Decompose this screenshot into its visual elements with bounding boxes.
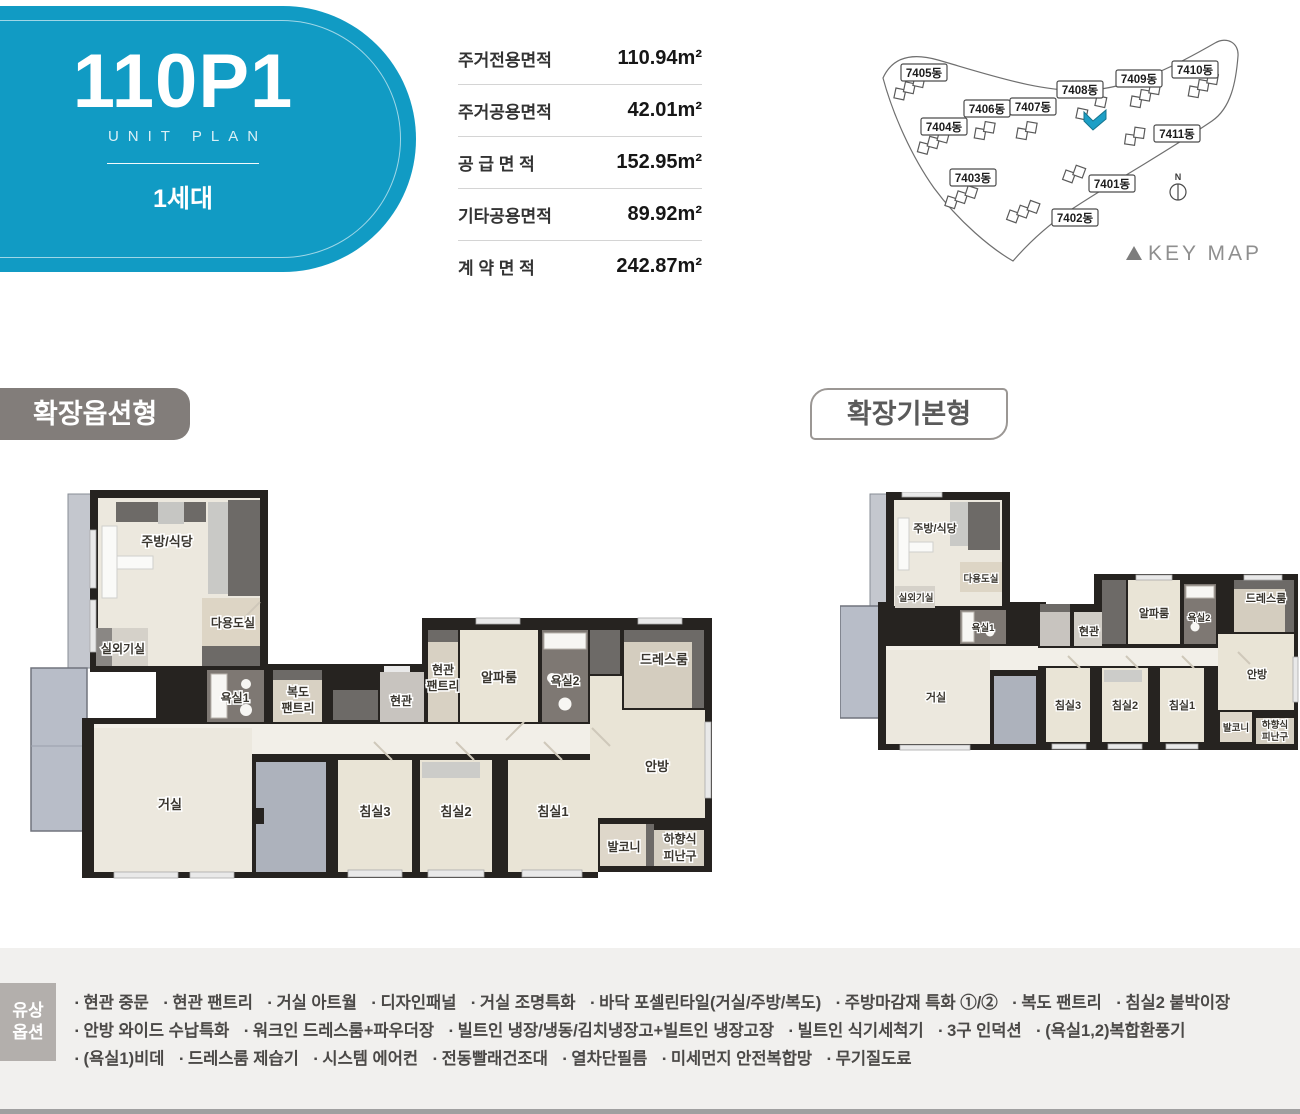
- table-row: 공 급 면 적 152.95m²: [458, 137, 702, 189]
- building-label: 7401동: [1089, 175, 1135, 192]
- option-item: ▪무기질도료: [827, 1050, 911, 1068]
- svg-text:7407동: 7407동: [1015, 101, 1052, 114]
- unit-subtitle: UNIT PLAN: [26, 128, 340, 145]
- square-bullet-icon: ▪: [471, 998, 475, 1009]
- paid-options-label-line: 옵션: [12, 1022, 43, 1044]
- building-label: 7403동: [950, 169, 996, 186]
- paid-options-label: 유상 옵션: [0, 983, 56, 1061]
- area-label: 주거공용면적: [458, 98, 552, 123]
- option-item: ▪워크인 드레스룸+파우더장: [244, 1022, 434, 1040]
- option-item: ▪전동빨래건조대: [433, 1050, 548, 1068]
- square-bullet-icon: ▪: [1037, 1026, 1041, 1037]
- building-label: 7406동: [964, 100, 1010, 117]
- area-label: 공 급 면 적: [458, 150, 535, 175]
- building-label: 7411동: [1154, 125, 1200, 142]
- paid-options-label-line: 유상: [12, 1000, 43, 1022]
- paid-options-line: ▪안방 와이드 수납특화▪워크인 드레스룸+파우더장▪빌트인 냉장/냉동/김치냉…: [75, 1017, 1290, 1045]
- room-label-entry: 현관: [390, 693, 412, 708]
- svg-text:7405동: 7405동: [906, 67, 943, 80]
- option-item: ▪(욕실1,2)복합환풍기: [1037, 1022, 1186, 1040]
- option-item: ▪빌트인 식기세척기: [789, 1022, 924, 1040]
- room-label-alpha: 알파룸: [1139, 606, 1169, 620]
- room-label-master: 안방: [645, 759, 669, 774]
- room-label-bath1: 욕실1: [221, 690, 250, 705]
- area-label: 기타공용면적: [458, 202, 552, 227]
- building-label: 7409동: [1116, 70, 1162, 87]
- paid-options-line: ▪현관 중문▪현관 팬트리▪거실 아트월▪디자인패널▪거실 조명특화▪바닥 포셀…: [75, 989, 1290, 1017]
- square-bullet-icon: ▪: [591, 998, 595, 1009]
- room-label-escape: 피난구: [663, 848, 696, 863]
- room-label-living: 거실: [158, 797, 182, 812]
- room-label-hall-pantry: 복도: [287, 685, 309, 699]
- floor-plan-basic-type: 주방/식당 다용도실 실외기실 욕실1 현관 알파룸 욕실2 드레스룸 거실 침…: [840, 492, 1300, 760]
- room-label-balcony: 발코니: [1223, 722, 1249, 734]
- room-label-entry: 현관: [1079, 624, 1099, 638]
- svg-text:7401동: 7401동: [1094, 178, 1131, 191]
- room-label-escape: 하향식: [1262, 719, 1288, 731]
- option-item: ▪주방마감재 특화 ①/②: [836, 994, 998, 1012]
- room-label-bed3: 침실3: [1055, 698, 1081, 712]
- square-bullet-icon: ▪: [449, 1026, 453, 1037]
- household-count: 1세대: [26, 179, 340, 215]
- paid-options-bar: 유상 옵션 ▪현관 중문▪현관 팬트리▪거실 아트월▪디자인패널▪거실 조명특화…: [0, 948, 1300, 1114]
- square-bullet-icon: ▪: [314, 1054, 318, 1065]
- room-label-utility: 다용도실: [211, 615, 255, 630]
- square-bullet-icon: ▪: [164, 998, 168, 1009]
- svg-text:7408동: 7408동: [1062, 84, 1099, 97]
- svg-text:7402동: 7402동: [1057, 212, 1094, 225]
- room-label-alpha: 알파룸: [481, 670, 517, 685]
- floor-plan-option-type: 주방/식당 다용도실 실외기실 욕실1 복도 팬트리 현관 현관 팬트리 알파룸…: [30, 478, 720, 890]
- area-value: 89.92m²: [628, 203, 703, 226]
- svg-text:KEY MAP: KEY MAP: [1148, 242, 1262, 265]
- square-bullet-icon: ▪: [75, 1054, 79, 1065]
- option-item: ▪현관 팬트리: [164, 994, 253, 1012]
- svg-text:7406동: 7406동: [969, 103, 1006, 116]
- option-item: ▪드레스룸 제습기: [179, 1050, 298, 1068]
- table-row: 기타공용면적 89.92m²: [458, 189, 702, 241]
- square-bullet-icon: ▪: [179, 1054, 183, 1065]
- building-label: 7410동: [1172, 61, 1218, 78]
- table-row: 계 약 면 적 242.87m²: [458, 241, 702, 292]
- plan-type-option-badge: 확장옵션형: [0, 388, 190, 440]
- room-label-bed2: 침실2: [440, 804, 471, 819]
- room-label-bed1: 침실1: [1169, 698, 1195, 712]
- room-label-bed3: 침실3: [359, 804, 390, 819]
- room-label-outdoor-unit: 실외기실: [101, 641, 145, 656]
- svg-text:N: N: [1175, 172, 1182, 182]
- room-label-bath2: 욕실2: [1188, 612, 1211, 624]
- room-label-bath2: 욕실2: [551, 673, 580, 688]
- side-balcony-strip: [68, 494, 93, 668]
- square-bullet-icon: ▪: [244, 1026, 248, 1037]
- area-table: 주거전용면적 110.94m² 주거공용면적 42.01m² 공 급 면 적 1…: [458, 33, 702, 292]
- unit-badge: 110P1 UNIT PLAN 1세대: [0, 6, 416, 272]
- area-label: 계 약 면 적: [458, 254, 535, 279]
- room-label-utility: 다용도실: [964, 573, 999, 585]
- square-bullet-icon: ▪: [789, 1026, 793, 1037]
- room-label-entry-pantry: 팬트리: [426, 678, 459, 693]
- square-bullet-icon: ▪: [268, 998, 272, 1009]
- plan-type-basic-badge: 확장기본형: [810, 388, 1008, 440]
- square-bullet-icon: ▪: [433, 1054, 437, 1065]
- option-item: ▪빌트인 냉장/냉동/김치냉장고+빌트인 냉장고장: [449, 1022, 774, 1040]
- paid-options-line: ▪(욕실1)비데▪드레스룸 제습기▪시스템 에어컨▪전동빨래건조대▪열차단필름▪…: [75, 1045, 1290, 1073]
- square-bullet-icon: ▪: [1117, 998, 1121, 1009]
- building-label: 7405동: [901, 64, 947, 81]
- triangle-icon: [1126, 246, 1142, 260]
- room-label-dress: 드레스룸: [640, 652, 688, 667]
- building-label: 7408동: [1057, 81, 1103, 98]
- square-bullet-icon: ▪: [827, 1054, 831, 1065]
- unit-badge-content: 110P1 UNIT PLAN 1세대: [26, 44, 340, 215]
- table-row: 주거공용면적 42.01m²: [458, 85, 702, 137]
- bottom-border-bar: [0, 1109, 1300, 1114]
- area-value: 110.94m²: [617, 47, 702, 70]
- badge-divider: [107, 163, 259, 164]
- building-label: 7407동: [1010, 98, 1056, 115]
- option-item: ▪미세먼지 안전복합망: [662, 1050, 812, 1068]
- room-label-balcony: 발코니: [607, 839, 640, 854]
- area-value: 42.01m²: [628, 99, 703, 122]
- svg-text:7411동: 7411동: [1159, 128, 1195, 141]
- option-item: ▪시스템 에어컨: [314, 1050, 418, 1068]
- option-item: ▪거실 아트월: [268, 994, 357, 1012]
- option-item: ▪3구 인덕션: [939, 1022, 1022, 1040]
- option-item: ▪바닥 포셀린타일(거실/주방/복도): [591, 994, 822, 1012]
- room-label-bath1: 욕실1: [972, 622, 995, 634]
- room-label-hall-pantry: 팬트리: [281, 700, 314, 715]
- option-item: ▪현관 중문: [75, 994, 149, 1012]
- square-bullet-icon: ▪: [75, 998, 79, 1009]
- svg-text:7409동: 7409동: [1121, 73, 1158, 86]
- square-bullet-icon: ▪: [836, 998, 840, 1009]
- compass-icon: N: [1170, 172, 1186, 200]
- terrace: [31, 668, 87, 831]
- paid-options-list: ▪현관 중문▪현관 팬트리▪거실 아트월▪디자인패널▪거실 조명특화▪바닥 포셀…: [75, 989, 1290, 1073]
- room-label-escape: 하향식: [663, 831, 696, 846]
- unit-plan-page: 110P1 UNIT PLAN 1세대 주거전용면적 110.94m² 주거공용…: [0, 0, 1300, 1114]
- room-label-kitchen: 주방/식당: [913, 521, 957, 535]
- svg-text:7403동: 7403동: [955, 172, 992, 185]
- svg-text:7410동: 7410동: [1177, 64, 1214, 77]
- option-item: ▪(욕실1)비데: [75, 1050, 164, 1068]
- room-label-bed1: 침실1: [537, 804, 568, 819]
- keymap-caption: KEY MAP: [1126, 242, 1262, 265]
- unit-code: 110P1: [26, 44, 340, 120]
- building-label: 7402동: [1052, 209, 1098, 226]
- square-bullet-icon: ▪: [939, 1026, 943, 1037]
- room-label-dress: 드레스룸: [1246, 591, 1286, 605]
- room-label-escape: 피난구: [1262, 731, 1288, 743]
- area-label: 주거전용면적: [458, 46, 552, 71]
- option-item: ▪침실2 붙박이장: [1117, 994, 1230, 1012]
- key-map: 7405동 7406동 7407동 7408동 7409동 7410동 7404…: [860, 30, 1300, 280]
- square-bullet-icon: ▪: [75, 1026, 79, 1037]
- building-label: 7404동: [921, 118, 967, 135]
- svg-text:7404동: 7404동: [926, 121, 963, 134]
- option-item: ▪안방 와이드 수납특화: [75, 1022, 229, 1040]
- area-value: 152.95m²: [616, 151, 702, 174]
- option-item: ▪복도 팬트리: [1013, 994, 1102, 1012]
- room-label-entry-pantry: 현관: [432, 662, 454, 677]
- room-label-kitchen: 주방/식당: [141, 534, 192, 549]
- room-label-outdoor-unit: 실외기실: [899, 592, 934, 604]
- square-bullet-icon: ▪: [1013, 998, 1017, 1009]
- room-label-master: 안방: [1247, 667, 1267, 681]
- option-item: ▪열차단필름: [563, 1050, 647, 1068]
- room-label-living: 거실: [926, 690, 946, 704]
- room-label-bed2: 침실2: [1112, 698, 1138, 712]
- area-value: 242.87m²: [616, 255, 702, 278]
- square-bullet-icon: ▪: [662, 1054, 666, 1065]
- square-bullet-icon: ▪: [372, 998, 376, 1009]
- table-row: 주거전용면적 110.94m²: [458, 33, 702, 85]
- building-footprints: [894, 70, 1218, 228]
- option-item: ▪거실 조명특화: [471, 994, 575, 1012]
- square-bullet-icon: ▪: [563, 1054, 567, 1065]
- option-item: ▪디자인패널: [372, 994, 456, 1012]
